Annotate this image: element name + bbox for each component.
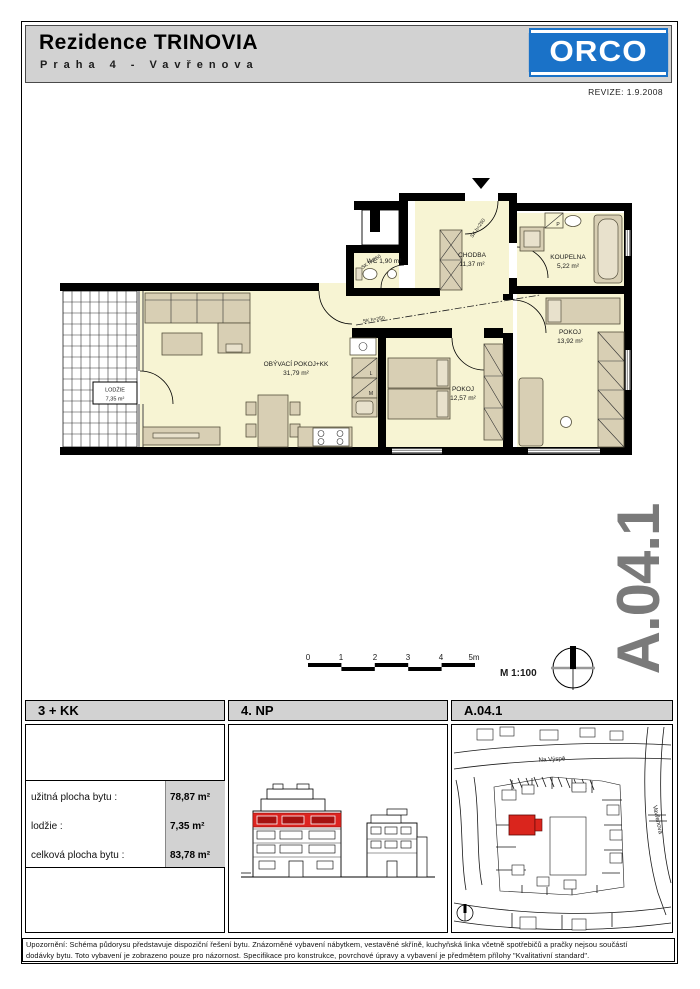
area-row-value: 78,87 m²	[170, 792, 224, 803]
summary-disposition: 3 + KK	[25, 700, 225, 721]
disclaimer-line2: dodávky bytu. Toto vybavení je zobrazeno…	[26, 951, 671, 962]
bathroom-area: 5,22 m²	[557, 263, 580, 270]
building-elevation	[229, 725, 447, 932]
orco-logo: ORCO	[529, 28, 668, 77]
stool	[561, 417, 572, 428]
coffee-table	[162, 333, 202, 355]
wardrobe2	[598, 332, 624, 447]
building-complex	[494, 777, 624, 895]
disclaimer-box: Upozornění: Schéma půdorysu představuje …	[22, 938, 675, 962]
balcony: LODŽIE 7,35 m²	[63, 291, 137, 447]
balcony-area: 7,35 m²	[106, 397, 125, 403]
daybed	[519, 378, 543, 446]
fridge-letter: L	[370, 371, 373, 377]
right-building	[367, 809, 427, 877]
bedroom2-label: POKOJ	[559, 329, 581, 336]
bedroom2-area: 13,92 m²	[557, 338, 583, 345]
wc-basin	[388, 270, 397, 279]
summary-floor: 4. NP	[228, 700, 448, 721]
entrance-marker-icon	[472, 178, 490, 189]
summary-unit: A.04.1	[451, 700, 673, 721]
living-label: OBÝVACÍ POKOJ+KK	[264, 359, 329, 368]
scale-bar: 0 1 2 3 4 5m M 1:100	[306, 653, 537, 679]
kitchen-sink	[350, 338, 376, 355]
site-map-panel: Na Výspě Vavřenova	[451, 724, 673, 933]
area-row-label: lodžie :	[31, 821, 161, 832]
site-map: Na Výspě Vavřenova	[452, 725, 672, 932]
scale-tick: 5m	[468, 653, 479, 662]
unit-code-watermark: A.04.1	[609, 489, 671, 689]
bedroom1-area: 12,57 m²	[450, 395, 476, 402]
scale-tick: 1	[339, 653, 344, 662]
washbasin	[565, 216, 581, 227]
toilet	[363, 269, 377, 280]
elevation-panel	[228, 724, 448, 933]
orco-logo-text: ORCO	[529, 33, 668, 72]
balcony-label: LODŽIE	[105, 386, 125, 394]
utility-shaft	[362, 210, 399, 245]
area-row-value: 83,78 m²	[170, 850, 224, 861]
scale-tick: 0	[306, 653, 311, 662]
project-subtitle: Praha 4 - Vavřenova	[40, 59, 259, 71]
scale-label: M 1:100	[500, 668, 537, 679]
hall-label: CHODBA	[458, 252, 486, 259]
scale-tick: 4	[439, 653, 444, 662]
freezer-letter: M	[369, 391, 373, 397]
area-row-value: 7,35 m²	[170, 821, 224, 832]
hall-area: 11,37 m²	[459, 261, 485, 268]
highlighted-unit	[509, 815, 535, 835]
bathroom-label: KOUPELNA	[550, 254, 586, 261]
left-building	[241, 784, 341, 877]
bedroom1-door-gap	[452, 328, 484, 338]
area-row-label: užitná plocha bytu :	[31, 792, 161, 803]
scale-tick: 3	[406, 653, 411, 662]
bedroom1-label: POKOJ	[452, 386, 474, 393]
bedroom2-door-gap	[503, 300, 513, 333]
north-compass-icon	[551, 646, 595, 690]
living-area: 31,79 m²	[283, 370, 309, 377]
dining-table	[258, 395, 288, 447]
project-title: Rezidence TRINOVIA	[39, 31, 258, 55]
floor-plan-drawing: LODŽIE 7,35 m²	[22, 84, 677, 698]
document-page: Rezidence TRINOVIA Praha 4 - Vavřenova O…	[0, 0, 700, 989]
disclaimer-line1: Upozornění: Schéma půdorysu představuje …	[26, 940, 671, 951]
map-north-icon	[457, 904, 473, 921]
area-row-label: celková plocha bytu :	[31, 850, 161, 861]
hall-wardrobe	[440, 230, 462, 290]
street-top-label: Na Výspě	[538, 755, 566, 763]
street-right-label: Vavřenova	[651, 805, 664, 835]
scale-tick: 2	[373, 653, 378, 662]
